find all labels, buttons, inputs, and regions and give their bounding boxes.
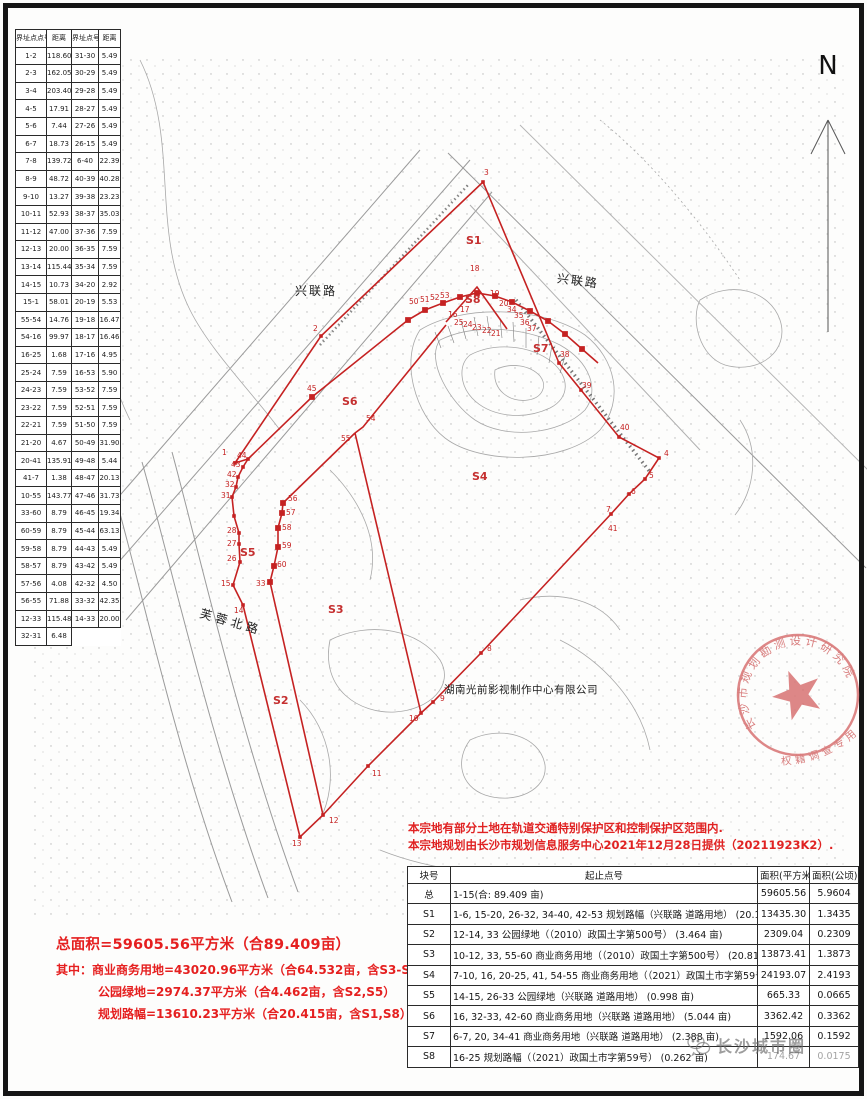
svg-text:58: 58 <box>282 523 292 532</box>
col-header: 起止点号 <box>451 867 758 884</box>
cell: 7.59 <box>99 399 121 417</box>
cell: 139.72 <box>47 153 72 171</box>
cell: 52.93 <box>47 205 72 223</box>
map-speckle-texture <box>30 55 845 915</box>
table-row: S514-15, 26-33 公园绿地（兴联路 道路用地） (0.998 亩)6… <box>408 985 859 1005</box>
cell: 18.73 <box>47 135 72 153</box>
cell: 12-14, 33 公园绿地（（2010）政国土字第500号） (3.464 亩… <box>451 924 758 944</box>
svg-text:56: 56 <box>288 494 298 503</box>
cell: 40-39 <box>72 170 99 188</box>
svg-text:26: 26 <box>227 554 237 563</box>
svg-text:15: 15 <box>221 579 231 588</box>
cell: 38-37 <box>72 205 99 223</box>
cell: 10.73 <box>47 276 72 294</box>
table-row: 2-3162.0530-295.49 <box>16 65 121 83</box>
cell: 6.48 <box>47 628 72 646</box>
col-header: 界址点号 <box>72 30 99 48</box>
cell: 22-21 <box>16 417 47 435</box>
cell: 5.49 <box>99 100 121 118</box>
table-row: S11-6, 15-20, 26-32, 34-40, 42-53 规划路幅（兴… <box>408 904 859 924</box>
cell: 5.49 <box>99 117 121 135</box>
note-line: 本宗地规划由长沙市规划信息服务中心2021年12月28日提供（20211923K… <box>408 837 833 854</box>
cell: 7.59 <box>99 223 121 241</box>
cell: 5.49 <box>99 47 121 65</box>
svg-text:11: 11 <box>372 769 382 778</box>
cell: 0.0175 <box>810 1047 859 1067</box>
note-line: 本宗地有部分土地在轨道交通特别保护区和控制保护区范围内. <box>408 820 833 837</box>
red-notes: 本宗地有部分土地在轨道交通特别保护区和控制保护区范围内. 本宗地规划由长沙市规划… <box>408 820 833 854</box>
cell: 33-32 <box>72 593 99 611</box>
table-row: 8-948.7240-3940.28 <box>16 170 121 188</box>
cell: 28-27 <box>72 100 99 118</box>
svg-text:59: 59 <box>282 541 292 550</box>
cell: 7-10, 16, 20-25, 41, 54-55 商业商务用地（（2021）… <box>451 965 758 985</box>
cell: 7.59 <box>47 364 72 382</box>
svg-text:8: 8 <box>487 644 492 653</box>
cell: 2309.04 <box>758 924 810 944</box>
table-row: 23-227.5952-517.59 <box>16 399 121 417</box>
cell: 51-50 <box>72 417 99 435</box>
cell: 41-7 <box>16 469 47 487</box>
svg-text:31: 31 <box>221 491 231 500</box>
table-row: 56-5571.8833-3242.35 <box>16 593 121 611</box>
table-row: 9-1013.2739-3823.23 <box>16 188 121 206</box>
cell: 0.0665 <box>810 985 859 1005</box>
svg-text:32: 32 <box>225 480 235 489</box>
cell: 135.91 <box>47 452 72 470</box>
cell: 23.23 <box>99 188 121 206</box>
svg-text:13: 13 <box>292 839 302 848</box>
cell: 10-12, 33, 55-60 商业商务用地（（2010）政国土字第500号）… <box>451 945 758 965</box>
cell: 42.35 <box>99 593 121 611</box>
svg-text:33: 33 <box>256 579 266 588</box>
boundary-point-table: 界址点点号 距离 界址点号 距离 1-2118.6031-305.492-316… <box>15 29 121 646</box>
road-label-xinglian-left: 兴联路 <box>295 282 337 299</box>
cell: 37-36 <box>72 223 99 241</box>
cell: 47.00 <box>47 223 72 241</box>
table-row: 12-1320.0036-357.59 <box>16 241 121 259</box>
cell: 2-3 <box>16 65 47 83</box>
table-row: 25-247.5916-535.90 <box>16 364 121 382</box>
cell: 32-31 <box>16 628 47 646</box>
cell: 56-55 <box>16 593 47 611</box>
cell: 15-1 <box>16 293 47 311</box>
table-row: 21-204.6750-4931.90 <box>16 434 121 452</box>
cell: 13873.41 <box>758 945 810 965</box>
cell: 0.1592 <box>810 1026 859 1046</box>
svg-text:12: 12 <box>329 816 339 825</box>
cell: 45-44 <box>72 522 99 540</box>
svg-text:S7: S7 <box>533 342 549 355</box>
cell: 20-41 <box>16 452 47 470</box>
cell: 58-57 <box>16 557 47 575</box>
table-row: S616, 32-33, 42-60 商业商务用地（兴联路 道路用地） (5.0… <box>408 1006 859 1026</box>
company-name-label: 湖南光前影视制作中心有限公司 <box>444 682 598 697</box>
svg-text:25: 25 <box>454 318 464 327</box>
cell: 10-11 <box>16 205 47 223</box>
table-row: 10-1152.9338-3735.03 <box>16 205 121 223</box>
cell: 29-28 <box>72 82 99 100</box>
cell: 3-4 <box>16 82 47 100</box>
cell: 13.27 <box>47 188 72 206</box>
cell: 8.79 <box>47 540 72 558</box>
svg-text:37: 37 <box>527 324 537 333</box>
col-header: 距离 <box>99 30 121 48</box>
cell: 48-47 <box>72 469 99 487</box>
cell: 1.38 <box>47 469 72 487</box>
cell: S4 <box>408 965 451 985</box>
svg-text:S3: S3 <box>328 603 344 616</box>
table-row: S212-14, 33 公园绿地（（2010）政国土字第500号） (3.464… <box>408 924 859 944</box>
table-row: 13-14115.4435-347.59 <box>16 258 121 276</box>
table-row: 11-1247.0037-367.59 <box>16 223 121 241</box>
cell: 203.40 <box>47 82 72 100</box>
cell: 50-49 <box>72 434 99 452</box>
svg-text:44: 44 <box>237 451 247 460</box>
svg-text:22: 22 <box>482 326 492 335</box>
cell: 58.01 <box>47 293 72 311</box>
cell: 57-56 <box>16 575 47 593</box>
cell: 99.97 <box>47 329 72 347</box>
cell: 7.59 <box>99 381 121 399</box>
svg-text:2: 2 <box>313 324 318 333</box>
cell: 16.46 <box>99 329 121 347</box>
cell: 8.79 <box>47 557 72 575</box>
cell: 5.49 <box>99 557 121 575</box>
cell: 1-6, 15-20, 26-32, 34-40, 42-53 规划路幅（兴联路… <box>451 904 758 924</box>
svg-text:60: 60 <box>277 560 287 569</box>
cell: 23-22 <box>16 399 47 417</box>
svg-text:10: 10 <box>409 714 419 723</box>
cell: 7-8 <box>16 153 47 171</box>
cell: 31.90 <box>99 434 121 452</box>
cell: 12-13 <box>16 241 47 259</box>
svg-text:45: 45 <box>307 384 317 393</box>
cell: S7 <box>408 1026 451 1046</box>
table-row: 57-564.0842-324.50 <box>16 575 121 593</box>
svg-text:57: 57 <box>286 508 296 517</box>
cell: 19.34 <box>99 505 121 523</box>
watermark: 长沙城市圈 <box>686 1033 806 1057</box>
cell: 47-46 <box>72 487 99 505</box>
cell: 16-53 <box>72 364 99 382</box>
cell: 11-12 <box>16 223 47 241</box>
cell: 7.59 <box>99 417 121 435</box>
cell: 5-6 <box>16 117 47 135</box>
cell: 5.49 <box>99 82 121 100</box>
cell: 13435.30 <box>758 904 810 924</box>
svg-text:7: 7 <box>606 505 611 514</box>
cell: 1.3873 <box>810 945 859 965</box>
cell: 9-10 <box>16 188 47 206</box>
cell: 0.2309 <box>810 924 859 944</box>
cell: 19-18 <box>72 311 99 329</box>
table-row: 59-588.7944-435.49 <box>16 540 121 558</box>
table-row: 12-33115.4814-3320.00 <box>16 610 121 628</box>
cell: 115.44 <box>47 258 72 276</box>
cell: 0.3362 <box>810 1006 859 1026</box>
cell: 6-40 <box>72 153 99 171</box>
cell: 16-25 <box>16 346 47 364</box>
cell: 4.08 <box>47 575 72 593</box>
cell: 39-38 <box>72 188 99 206</box>
cell: 20.00 <box>47 241 72 259</box>
cell: 1-2 <box>16 47 47 65</box>
cell: 5.49 <box>99 65 121 83</box>
cell: 42-32 <box>72 575 99 593</box>
cell: 30-29 <box>72 65 99 83</box>
cell: 52-51 <box>72 399 99 417</box>
cell: 16, 32-33, 42-60 商业商务用地（兴联路 道路用地） (5.044… <box>451 1006 758 1026</box>
col-header: 界址点点号 <box>16 30 47 48</box>
table-row: 22-217.5951-507.59 <box>16 417 121 435</box>
cell: 118.60 <box>47 47 72 65</box>
svg-text:41: 41 <box>608 524 618 533</box>
cell: 5.9604 <box>810 884 859 904</box>
cell: 6-7 <box>16 135 47 153</box>
table-row: 15-158.0120-195.53 <box>16 293 121 311</box>
table-row: 54-1699.9718-1716.46 <box>16 329 121 347</box>
svg-text:S1: S1 <box>466 234 482 247</box>
cell: 5.53 <box>99 293 121 311</box>
svg-text:3: 3 <box>484 168 489 177</box>
cell: S5 <box>408 985 451 1005</box>
cell: 59605.56 <box>758 884 810 904</box>
cell: 7.59 <box>47 381 72 399</box>
svg-text:43: 43 <box>231 460 241 469</box>
cell: 34-20 <box>72 276 99 294</box>
cell: 48.72 <box>47 170 72 188</box>
cell: 143.77 <box>47 487 72 505</box>
cell: 8.79 <box>47 522 72 540</box>
svg-text:28: 28 <box>227 526 237 535</box>
table-row: S47-10, 16, 20-25, 41, 54-55 商业商务用地（（202… <box>408 965 859 985</box>
cell: 36-35 <box>72 241 99 259</box>
cell: 4.95 <box>99 346 121 364</box>
cell: 4.67 <box>47 434 72 452</box>
svg-text:21: 21 <box>491 329 501 338</box>
north-arrow: N <box>798 40 867 350</box>
cell: 162.05 <box>47 65 72 83</box>
cell: 1.68 <box>47 346 72 364</box>
cell: 7.59 <box>47 399 72 417</box>
table-row: 5-67.4427-265.49 <box>16 117 121 135</box>
cell: 21-20 <box>16 434 47 452</box>
col-header: 面积(平方米) <box>758 867 810 884</box>
table-row: S310-12, 33, 55-60 商业商务用地（（2010）政国土字第500… <box>408 945 859 965</box>
cell: 20.00 <box>99 610 121 628</box>
table-row: 1-2118.6031-305.49 <box>16 47 121 65</box>
svg-text:S4: S4 <box>472 470 488 483</box>
cell: S2 <box>408 924 451 944</box>
cell: 7.44 <box>47 117 72 135</box>
cell: 7.59 <box>99 241 121 259</box>
svg-text:S8: S8 <box>465 293 481 306</box>
svg-text:6: 6 <box>631 487 636 496</box>
cell: 5.44 <box>99 452 121 470</box>
table-row: 60-598.7945-4463.13 <box>16 522 121 540</box>
svg-text:39: 39 <box>582 381 592 390</box>
cell: 10-55 <box>16 487 47 505</box>
table-row: 41-71.3848-4720.13 <box>16 469 121 487</box>
cell: 20-19 <box>72 293 99 311</box>
table-row: 4-517.9128-275.49 <box>16 100 121 118</box>
cell: 14-15 <box>16 276 47 294</box>
cell <box>99 628 121 646</box>
cell: 35.03 <box>99 205 121 223</box>
boundary-table-body: 1-2118.6031-305.492-3162.0530-295.493-42… <box>16 47 121 645</box>
table-row: 6-718.7326-155.49 <box>16 135 121 153</box>
cell: S6 <box>408 1006 451 1026</box>
seal-star <box>765 662 828 724</box>
cell: 60-59 <box>16 522 47 540</box>
svg-text:17: 17 <box>460 305 470 314</box>
svg-text:S2: S2 <box>273 694 289 707</box>
cell: 71.88 <box>47 593 72 611</box>
seal-top-text: 长沙市规划勘测设计研究院 <box>731 614 862 733</box>
cell: 17.91 <box>47 100 72 118</box>
cell: 40.28 <box>99 170 121 188</box>
cell: 31.73 <box>99 487 121 505</box>
cell: 22.39 <box>99 153 121 171</box>
cell: 20.13 <box>99 469 121 487</box>
svg-text:18: 18 <box>470 264 480 273</box>
table-row: 14-1510.7334-202.92 <box>16 276 121 294</box>
cell: 16.47 <box>99 311 121 329</box>
cell: 63.13 <box>99 522 121 540</box>
svg-text:1: 1 <box>222 448 227 457</box>
table-row: 总1-15(合: 89.409 亩)59605.565.9604 <box>408 884 859 904</box>
cell: 14.76 <box>47 311 72 329</box>
svg-text:42: 42 <box>227 470 237 479</box>
north-letter: N <box>818 51 837 81</box>
svg-text:4: 4 <box>664 449 669 458</box>
col-header: 面积(公顷) <box>810 867 859 884</box>
cell: S1 <box>408 904 451 924</box>
cell: 5.49 <box>99 135 121 153</box>
cell: S8 <box>408 1047 451 1067</box>
cell: 27-26 <box>72 117 99 135</box>
col-header: 距离 <box>47 30 72 48</box>
cell: 1-15(合: 89.409 亩) <box>451 884 758 904</box>
cell: 17-16 <box>72 346 99 364</box>
cell: 13-14 <box>16 258 47 276</box>
cell: 5.90 <box>99 364 121 382</box>
svg-text:51: 51 <box>420 295 430 304</box>
wechat-icon <box>686 1033 712 1057</box>
cell: S3 <box>408 945 451 965</box>
cell <box>72 628 99 646</box>
svg-text:24: 24 <box>463 320 473 329</box>
cell: 24-23 <box>16 381 47 399</box>
cell: 31-30 <box>72 47 99 65</box>
cell: 12-33 <box>16 610 47 628</box>
cell: 14-33 <box>72 610 99 628</box>
cell: 115.48 <box>47 610 72 628</box>
table-row: 10-55143.7747-4631.73 <box>16 487 121 505</box>
cell: 7.59 <box>99 258 121 276</box>
cell: 59-58 <box>16 540 47 558</box>
cell: 665.33 <box>758 985 810 1005</box>
table-row: 7-8139.726-4022.39 <box>16 153 121 171</box>
cell: 54-16 <box>16 329 47 347</box>
table-row: 20-41135.9149-485.44 <box>16 452 121 470</box>
svg-text:55: 55 <box>341 434 351 443</box>
cell: 26-15 <box>72 135 99 153</box>
cell: 8.79 <box>47 505 72 523</box>
red-seal-stamp: 长沙市规划勘测设计研究院 权籍调查专用章 <box>731 608 865 786</box>
cell: 7.59 <box>47 417 72 435</box>
cell: 53-52 <box>72 381 99 399</box>
table-row: 55-5414.7619-1816.47 <box>16 311 121 329</box>
cell: 18-17 <box>72 329 99 347</box>
cell: 3362.42 <box>758 1006 810 1026</box>
svg-text:53: 53 <box>440 291 450 300</box>
survey-map-sheet: 1234567891011121314151617181920212223242… <box>0 0 867 1099</box>
cell: 2.4193 <box>810 965 859 985</box>
cell: 49-48 <box>72 452 99 470</box>
table-row: 16-251.6817-164.95 <box>16 346 121 364</box>
table-row: 33-608.7946-4519.34 <box>16 505 121 523</box>
table-row: 58-578.7943-425.49 <box>16 557 121 575</box>
cell: 8-9 <box>16 170 47 188</box>
cell: 43-42 <box>72 557 99 575</box>
table-row: 32-316.48 <box>16 628 121 646</box>
svg-text:38: 38 <box>560 350 570 359</box>
svg-text:19: 19 <box>490 289 500 298</box>
svg-text:52: 52 <box>430 293 440 302</box>
svg-text:27: 27 <box>227 539 237 548</box>
cell: 1.3435 <box>810 904 859 924</box>
col-header: 块号 <box>408 867 451 884</box>
cell: 46-45 <box>72 505 99 523</box>
cell: 25-24 <box>16 364 47 382</box>
cell: 5.49 <box>99 540 121 558</box>
cell: 总 <box>408 884 451 904</box>
cell: 4.50 <box>99 575 121 593</box>
cell: 44-43 <box>72 540 99 558</box>
svg-text:S6: S6 <box>342 395 358 408</box>
cell: 4-5 <box>16 100 47 118</box>
cell: 2.92 <box>99 276 121 294</box>
cell: 55-54 <box>16 311 47 329</box>
table-row: 3-4203.4029-285.49 <box>16 82 121 100</box>
svg-text:54: 54 <box>366 414 376 423</box>
cell: 24193.07 <box>758 965 810 985</box>
svg-text:5: 5 <box>649 471 654 480</box>
table-row: 24-237.5953-527.59 <box>16 381 121 399</box>
svg-text:S5: S5 <box>240 546 256 559</box>
svg-text:23: 23 <box>472 323 482 332</box>
watermark-text: 长沙城市圈 <box>716 1033 806 1057</box>
cell: 33-60 <box>16 505 47 523</box>
cell: 14-15, 26-33 公园绿地（兴联路 道路用地） (0.998 亩) <box>451 985 758 1005</box>
cell: 35-34 <box>72 258 99 276</box>
svg-text:50: 50 <box>409 297 419 306</box>
svg-text:40: 40 <box>620 423 630 432</box>
